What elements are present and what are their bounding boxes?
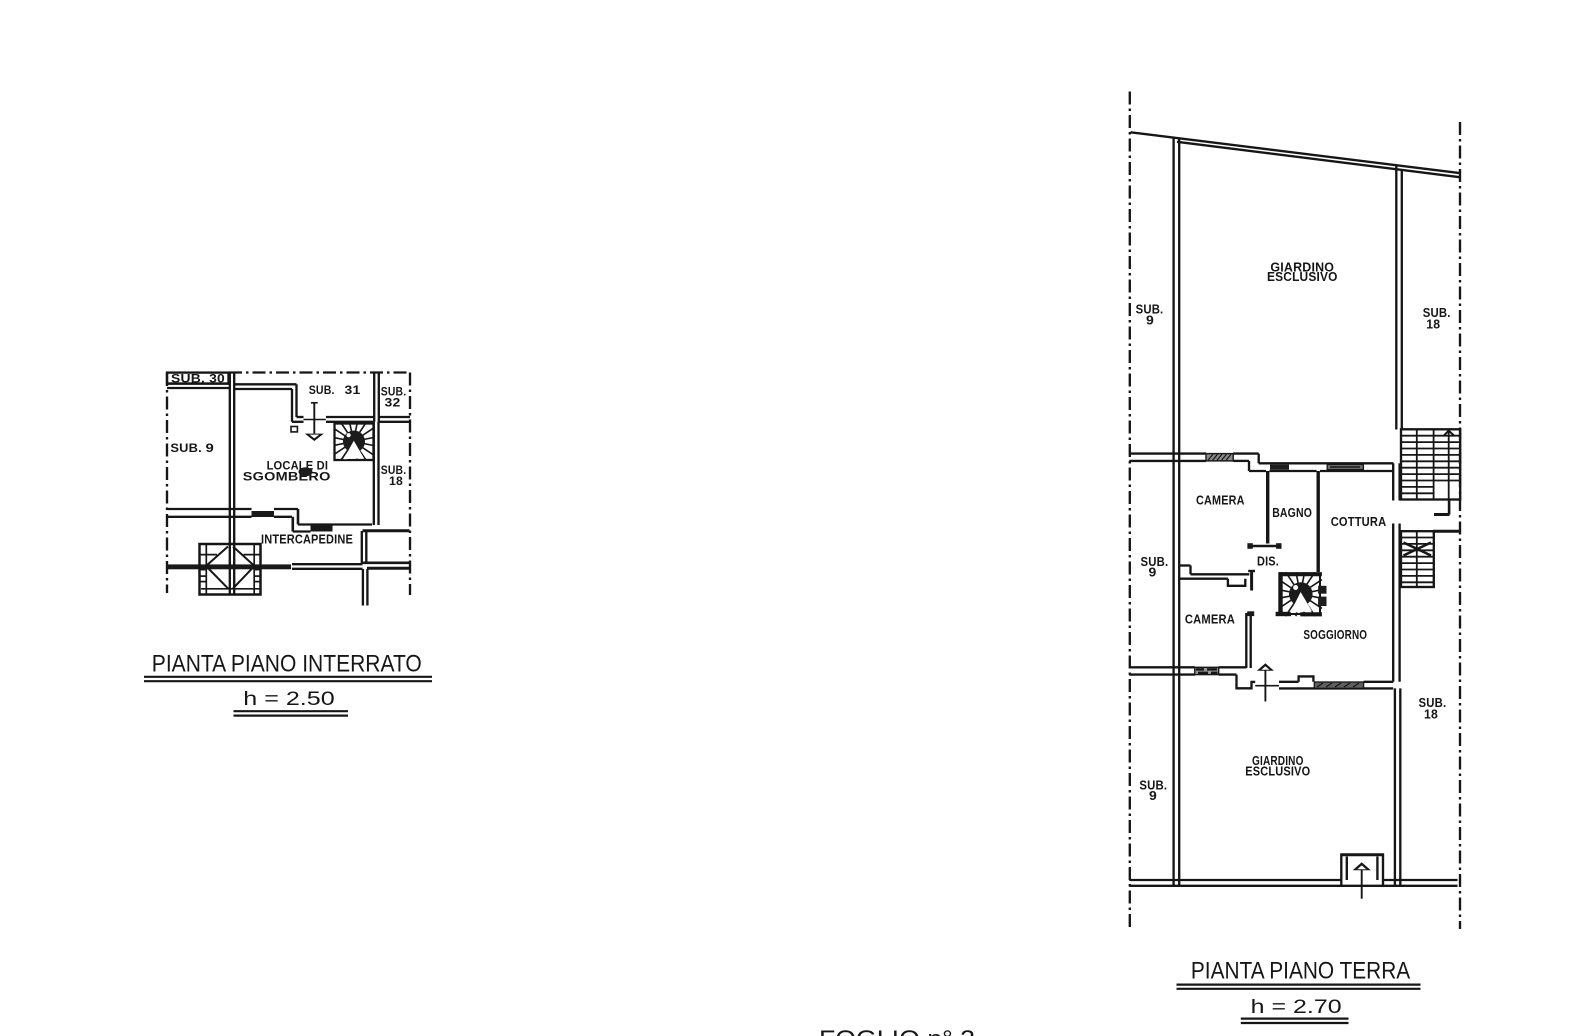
svg-text:CAMERA: CAMERA [1196,494,1245,508]
svg-text:9: 9 [206,441,215,455]
svg-text:SGOMBERO: SGOMBERO [243,469,331,483]
svg-text:COTTURA: COTTURA [1331,515,1387,529]
svg-text:PIANTA PIANO INTERRATO: PIANTA PIANO INTERRATO [152,651,422,678]
svg-text:INTERCAPEDINE: INTERCAPEDINE [261,532,353,547]
svg-text:SUB.: SUB. [170,441,202,455]
svg-text:9: 9 [1149,789,1157,803]
svg-text:DIS.: DIS. [1257,555,1279,569]
svg-text:9: 9 [1146,313,1154,327]
svg-text:9: 9 [1149,565,1157,579]
svg-text:h = 2.70: h = 2.70 [1251,997,1342,1018]
svg-text:SUB. 30: SUB. 30 [171,371,225,385]
svg-text:PIANTA PIANO TERRA: PIANTA PIANO TERRA [1191,957,1410,984]
svg-text:BAGNO: BAGNO [1272,506,1312,520]
svg-text:SOGGIORNO: SOGGIORNO [1303,628,1367,642]
svg-text:h = 2.50: h = 2.50 [243,689,334,710]
svg-text:ESCLUSIVO: ESCLUSIVO [1267,270,1338,284]
svg-text:18: 18 [1426,317,1440,331]
svg-text:ESCLUSIVO: ESCLUSIVO [1245,764,1310,778]
svg-text:18: 18 [389,474,403,488]
svg-text:FOGLIO n° 2: FOGLIO n° 2 [819,1026,975,1036]
svg-text:31: 31 [345,383,361,397]
svg-text:18: 18 [1424,707,1438,721]
svg-text:SUB.: SUB. [309,383,335,397]
svg-text:32: 32 [385,395,401,409]
svg-text:CAMERA: CAMERA [1185,613,1235,627]
